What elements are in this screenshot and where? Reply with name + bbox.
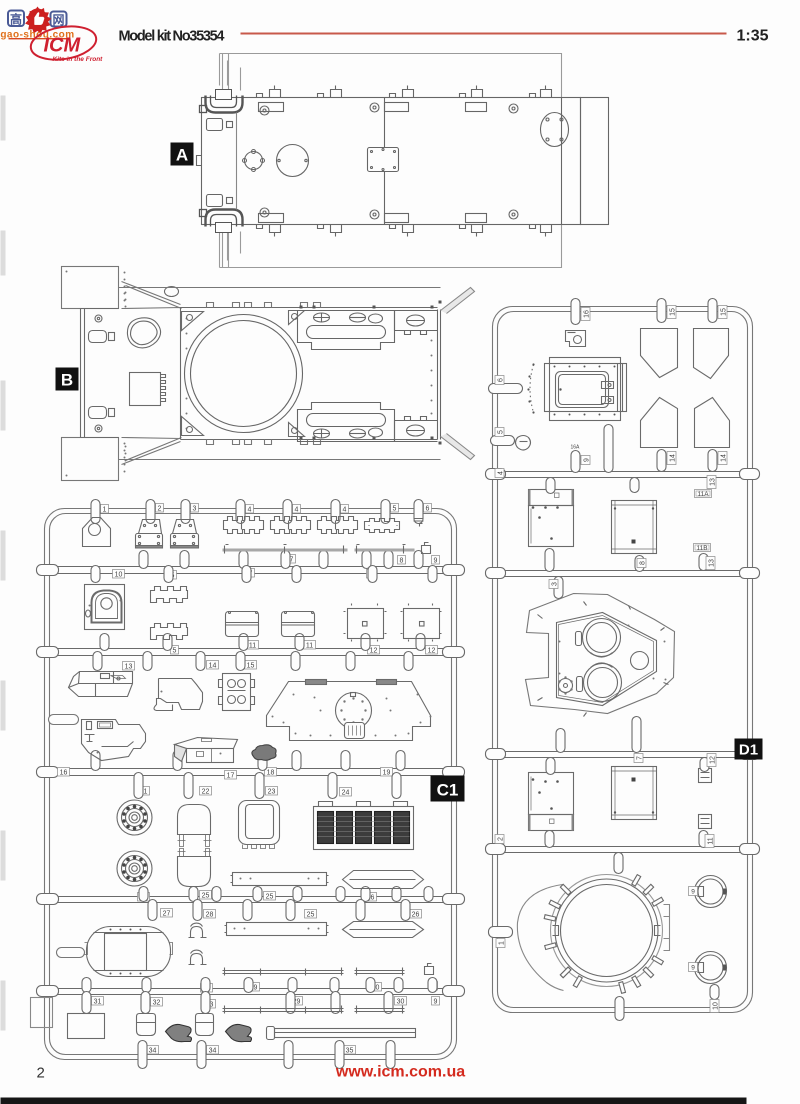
svg-text:10: 10 xyxy=(115,572,123,579)
svg-text:D1: D1 xyxy=(739,742,758,759)
svg-text:2: 2 xyxy=(498,837,505,841)
svg-text:6: 6 xyxy=(426,506,430,513)
svg-text:35: 35 xyxy=(346,1048,354,1055)
svg-text:10: 10 xyxy=(713,1002,720,1010)
svg-text:9: 9 xyxy=(434,558,438,565)
svg-text:14: 14 xyxy=(209,663,217,670)
svg-text:24: 24 xyxy=(342,790,350,797)
svg-text:11: 11 xyxy=(306,643,313,650)
svg-text:8: 8 xyxy=(400,558,404,565)
svg-text:23: 23 xyxy=(268,789,276,796)
svg-text:Kits in the Front: Kits in the Front xyxy=(53,56,104,63)
svg-text:9: 9 xyxy=(584,458,591,462)
svg-text:11B: 11B xyxy=(696,545,707,552)
svg-text:www.icm.com.ua: www.icm.com.ua xyxy=(335,1064,465,1081)
svg-text:30: 30 xyxy=(397,999,405,1006)
svg-text:高: 高 xyxy=(10,12,22,27)
svg-text:14: 14 xyxy=(670,454,677,462)
svg-text:14: 14 xyxy=(721,454,728,462)
svg-text:26: 26 xyxy=(412,912,420,919)
svg-text:11A: 11A xyxy=(697,491,709,498)
svg-text:9: 9 xyxy=(691,889,695,896)
svg-text:15: 15 xyxy=(247,663,255,670)
svg-text:4: 4 xyxy=(295,507,299,514)
svg-text:C1: C1 xyxy=(437,781,459,800)
svg-text:2: 2 xyxy=(158,506,162,513)
svg-text:3: 3 xyxy=(552,582,559,586)
svg-text:17: 17 xyxy=(227,773,235,780)
svg-text:Model kit No35354: Model kit No35354 xyxy=(119,29,225,45)
svg-text:1: 1 xyxy=(499,941,506,945)
svg-text:12: 12 xyxy=(428,648,436,655)
svg-text:16A: 16A xyxy=(571,445,581,451)
svg-text:5: 5 xyxy=(393,506,397,513)
svg-text:11: 11 xyxy=(708,837,715,844)
svg-text:34: 34 xyxy=(149,1048,157,1055)
svg-text:16: 16 xyxy=(60,770,68,777)
svg-text:8: 8 xyxy=(640,561,647,565)
svg-text:9: 9 xyxy=(434,999,438,1006)
svg-text:5: 5 xyxy=(173,648,177,655)
svg-text:4: 4 xyxy=(343,507,347,514)
svg-text:27: 27 xyxy=(163,911,171,918)
svg-text:2: 2 xyxy=(37,1065,45,1082)
svg-text:3: 3 xyxy=(193,506,197,513)
svg-text:32: 32 xyxy=(153,1000,161,1007)
svg-text:4: 4 xyxy=(248,507,252,514)
svg-text:5: 5 xyxy=(498,430,505,434)
svg-text:12: 12 xyxy=(370,648,378,655)
svg-text:6: 6 xyxy=(498,378,505,382)
svg-text:31: 31 xyxy=(94,999,102,1006)
svg-text:13: 13 xyxy=(710,478,717,486)
svg-text:16: 16 xyxy=(584,310,591,318)
svg-text:A: A xyxy=(176,146,188,165)
svg-text:15: 15 xyxy=(670,308,677,316)
svg-text:B: B xyxy=(61,371,73,390)
svg-text:11: 11 xyxy=(249,643,256,650)
svg-text:25: 25 xyxy=(266,894,274,901)
svg-text:13: 13 xyxy=(709,559,716,567)
svg-text:1: 1 xyxy=(103,507,107,514)
svg-text:13: 13 xyxy=(125,664,133,671)
svg-text:15: 15 xyxy=(721,308,728,316)
svg-text:9: 9 xyxy=(691,965,695,972)
svg-text:4: 4 xyxy=(498,471,505,475)
svg-text:ICM: ICM xyxy=(44,35,82,57)
svg-text:7: 7 xyxy=(637,756,644,760)
svg-text:25: 25 xyxy=(307,912,315,919)
svg-text:25: 25 xyxy=(202,893,210,900)
svg-text:1:35: 1:35 xyxy=(737,28,769,45)
svg-text:22: 22 xyxy=(202,789,210,796)
svg-text:网: 网 xyxy=(52,13,64,27)
svg-text:12: 12 xyxy=(710,756,717,764)
svg-text:28: 28 xyxy=(206,912,214,919)
svg-text:18: 18 xyxy=(267,770,275,777)
svg-text:34: 34 xyxy=(209,1048,217,1055)
svg-text:19: 19 xyxy=(383,770,391,777)
